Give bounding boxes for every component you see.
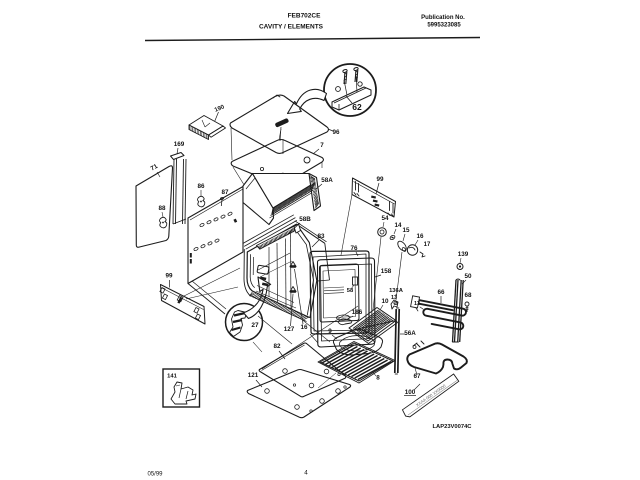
svg-text:14: 14 (394, 222, 402, 229)
svg-text:76: 76 (350, 245, 358, 252)
svg-text:67: 67 (413, 373, 421, 380)
svg-text:158: 158 (381, 268, 392, 275)
svg-text:127: 127 (284, 326, 295, 333)
svg-text:87: 87 (221, 189, 229, 196)
svg-text:LAP23V0074C: LAP23V0074C (433, 424, 473, 430)
svg-text:186: 186 (352, 309, 363, 316)
svg-text:62: 62 (352, 102, 362, 112)
svg-text:05/99: 05/99 (147, 472, 163, 478)
svg-text:54: 54 (381, 215, 389, 222)
svg-text:13: 13 (414, 301, 420, 307)
svg-text:99: 99 (165, 273, 173, 280)
svg-text:99: 99 (376, 176, 384, 183)
svg-text:Publication No.: Publication No. (421, 15, 465, 21)
svg-text:9: 9 (328, 328, 332, 335)
svg-text:FEB702CE: FEB702CE (288, 13, 322, 20)
svg-text:121: 121 (248, 372, 259, 379)
svg-text:15: 15 (402, 227, 410, 234)
svg-text:82: 82 (273, 343, 281, 350)
svg-text:17: 17 (424, 242, 431, 248)
svg-text:141: 141 (167, 374, 177, 380)
svg-text:4: 4 (304, 470, 308, 477)
svg-text:8: 8 (376, 375, 380, 382)
svg-text:169: 169 (174, 141, 185, 148)
svg-text:CAVITY / ELEMENTS: CAVITY / ELEMENTS (259, 24, 324, 31)
svg-text:16: 16 (416, 233, 424, 240)
svg-text:7: 7 (320, 142, 324, 149)
svg-text:27: 27 (251, 322, 259, 329)
svg-text:16: 16 (300, 324, 308, 331)
svg-text:139: 139 (458, 251, 469, 258)
svg-text:96: 96 (332, 129, 340, 136)
svg-text:50: 50 (464, 273, 472, 280)
svg-text:68: 68 (464, 292, 472, 299)
svg-text:58A: 58A (321, 177, 333, 184)
svg-text:58B: 58B (299, 216, 311, 223)
svg-text:56A: 56A (404, 330, 416, 337)
svg-text:83: 83 (317, 233, 325, 240)
svg-text:66: 66 (437, 289, 445, 296)
svg-text:88: 88 (158, 205, 166, 212)
svg-text:136A: 136A (389, 288, 404, 294)
svg-text:5995323085: 5995323085 (427, 23, 461, 29)
svg-text:10: 10 (381, 298, 389, 305)
svg-text:58: 58 (347, 288, 354, 294)
svg-text:86: 86 (197, 183, 205, 190)
